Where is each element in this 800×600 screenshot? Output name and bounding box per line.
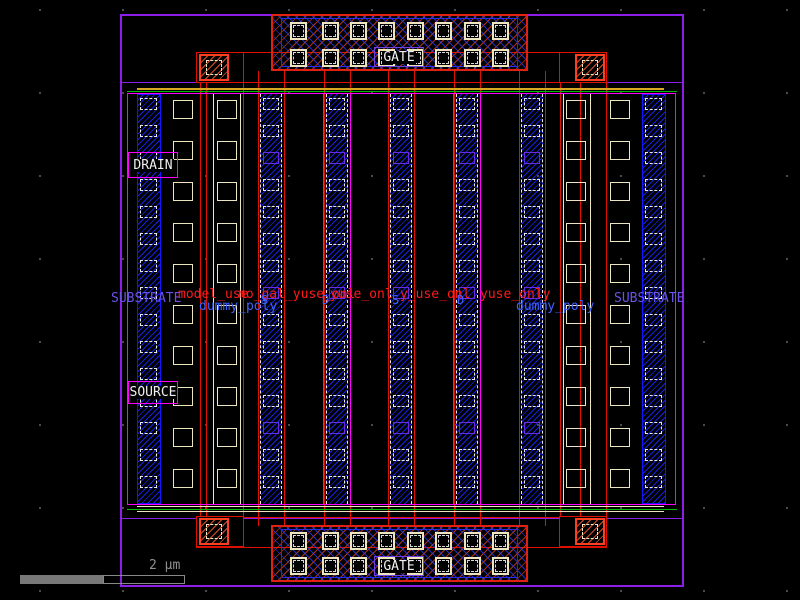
contact-square (329, 341, 345, 353)
contact-square (263, 476, 279, 488)
contact-square (645, 314, 662, 326)
contact-square (524, 476, 540, 488)
source-label-box[interactable]: SOURCE (128, 381, 178, 404)
contact-square (140, 179, 157, 191)
grid-dot (39, 590, 41, 592)
well-tap-square (610, 182, 630, 201)
contact-square (140, 125, 157, 137)
contact-line-bottom (137, 511, 664, 512)
grid-dot (371, 590, 373, 592)
gate-contact-cut (495, 52, 506, 64)
contact-square (263, 368, 279, 380)
substrate-label-left[interactable]: SUBSTRATE (111, 292, 181, 305)
contact-square (393, 341, 409, 353)
grid-dot (786, 175, 788, 177)
contact-square (263, 233, 279, 245)
gate-contact-cut (495, 535, 506, 547)
contact-square (263, 395, 279, 407)
well-tap-square (610, 346, 630, 365)
well-tap-square (610, 469, 630, 488)
well-tap-square (217, 428, 237, 447)
substrate-label-right[interactable]: SUBSTRATE (614, 292, 684, 305)
finger-letter-d1[interactable]: D (322, 294, 329, 306)
grid-dot (288, 9, 290, 11)
via-cut (206, 60, 222, 75)
contact-square (393, 476, 409, 488)
contact-square (459, 206, 475, 218)
well-tap-square (566, 182, 586, 201)
contact-square (459, 395, 475, 407)
contact-square (329, 368, 345, 380)
well-tap-square (566, 469, 586, 488)
well-tap-square (217, 182, 237, 201)
well-tap-square (610, 387, 630, 406)
grid-dot (39, 341, 41, 343)
drain-label: DRAIN (132, 159, 173, 172)
well-tap-square (173, 223, 193, 242)
well-tap-square (610, 428, 630, 447)
gate-contact-cut (438, 52, 449, 64)
contact-square (645, 395, 662, 407)
well-tap-square (217, 100, 237, 119)
well-tap-square (173, 346, 193, 365)
gate-contact-cut (438, 25, 449, 37)
grid-dot (537, 590, 539, 592)
contact-square (459, 179, 475, 191)
gate-contact-cut (353, 535, 364, 547)
gate-contact-cut (325, 560, 336, 572)
diffusion-line-bottom (127, 509, 677, 510)
grid-dot (786, 258, 788, 260)
gate-contact-cut (438, 560, 449, 572)
contact-square (459, 152, 475, 164)
well-tap-square (173, 428, 193, 447)
grid-dot (703, 92, 705, 94)
contact-square (459, 476, 475, 488)
contact-square (645, 449, 662, 461)
scale-bar-label: 2 µm (149, 559, 180, 572)
grid-dot (786, 590, 788, 592)
grid-dot (703, 9, 705, 11)
contact-square (140, 260, 157, 272)
diffusion-line-top (127, 91, 677, 92)
contact-square (329, 395, 345, 407)
grid-dot (786, 9, 788, 11)
contact-square (393, 314, 409, 326)
gate-label-box-top[interactable]: GATE (374, 47, 424, 67)
grid-dot (703, 258, 705, 260)
contact-square (645, 179, 662, 191)
contact-square (263, 422, 279, 434)
contact-square (263, 449, 279, 461)
gate-label-box-bottom[interactable]: GATE (374, 556, 424, 576)
well-tap-square (173, 182, 193, 201)
gate-contact-cut (467, 560, 478, 572)
contact-square (524, 314, 540, 326)
contact-square (393, 422, 409, 434)
contact-square (393, 152, 409, 164)
contact-square (524, 125, 540, 137)
gate-label-top: GATE (382, 51, 415, 64)
grid-dot (288, 590, 290, 592)
contact-square (329, 98, 345, 110)
contact-square (393, 260, 409, 272)
via-cut (582, 524, 598, 539)
grid-dot (786, 507, 788, 509)
gate-contact-cut (410, 25, 421, 37)
gate-contact-cut (381, 535, 392, 547)
well-tap-square (173, 305, 193, 324)
well-tap-square (566, 141, 586, 160)
contact-square (524, 98, 540, 110)
contact-square (645, 206, 662, 218)
grid-dot (371, 9, 373, 11)
contact-square (524, 422, 540, 434)
grid-dot (703, 590, 705, 592)
gate-contact-cut (293, 560, 304, 572)
well-tap-square (566, 100, 586, 119)
grid-dot (620, 9, 622, 11)
grid-dot (703, 341, 705, 343)
contact-square (329, 233, 345, 245)
contact-square (524, 341, 540, 353)
grid-dot (122, 590, 124, 592)
grid-dot (537, 9, 539, 11)
contact-square (140, 449, 157, 461)
grid-dot (39, 9, 41, 11)
contact-square (263, 98, 279, 110)
contact-square (329, 179, 345, 191)
contact-square (329, 206, 345, 218)
well-tap-square (217, 387, 237, 406)
contact-square (524, 260, 540, 272)
layout-canvas[interactable]: GATE GATE DRAIN SOURCE SUBSTRATE SUBSTRA… (0, 0, 800, 600)
contact-square (393, 233, 409, 245)
contact-square (140, 476, 157, 488)
via-cut (206, 524, 222, 539)
gate-contact-cut (353, 25, 364, 37)
contact-square (393, 179, 409, 191)
grid-dot (39, 424, 41, 426)
gate-contact-cut (438, 535, 449, 547)
finger-letter-s2[interactable]: S (392, 294, 399, 306)
grid-dot (703, 507, 705, 509)
contact-square (140, 206, 157, 218)
gate-contact-cut (353, 52, 364, 64)
scale-bar-hollow-segment (103, 575, 185, 584)
gate-contact-cut (293, 52, 304, 64)
well-tap-square (217, 264, 237, 283)
finger-letter-d2[interactable]: D (457, 294, 464, 306)
contact-square (329, 260, 345, 272)
contact-square (459, 341, 475, 353)
contact-square (524, 179, 540, 191)
contact-square (263, 260, 279, 272)
contact-square (263, 179, 279, 191)
contact-square (524, 206, 540, 218)
grid-dot (703, 424, 705, 426)
contact-square (459, 233, 475, 245)
contact-square (140, 233, 157, 245)
contact-square (393, 98, 409, 110)
grid-dot (205, 590, 207, 592)
contact-square (329, 152, 345, 164)
well-tap-square (173, 469, 193, 488)
gate-contact-cut (410, 535, 421, 547)
well-tap-square (566, 346, 586, 365)
well-tap-square (610, 100, 630, 119)
grid-dot (39, 258, 41, 260)
contact-square (329, 449, 345, 461)
gate-contact-cut (293, 535, 304, 547)
gate-contact-cut (293, 25, 304, 37)
drain-label-box[interactable]: DRAIN (128, 152, 178, 178)
contact-square (393, 368, 409, 380)
grid-dot (39, 507, 41, 509)
implant-line-top (137, 88, 664, 90)
well-tap-square (173, 100, 193, 119)
grid-dot (786, 341, 788, 343)
contact-square (524, 233, 540, 245)
contact-square (329, 125, 345, 137)
contact-square (459, 314, 475, 326)
well-tap-square (217, 223, 237, 242)
grid-dot (620, 590, 622, 592)
contact-square (329, 422, 345, 434)
contact-square (140, 422, 157, 434)
dummy-poly-label-right[interactable]: dummy_poly (516, 300, 594, 313)
gate-contact-cut (467, 52, 478, 64)
well-tap-square (566, 428, 586, 447)
contact-square (524, 395, 540, 407)
well-tap-square (217, 346, 237, 365)
annotation-text[interactable]: yuse_onl (330, 288, 393, 301)
contact-square (645, 152, 662, 164)
contact-square (329, 476, 345, 488)
via-cut (582, 60, 598, 75)
contact-square (459, 422, 475, 434)
contact-square (459, 368, 475, 380)
gate-contact-cut (381, 25, 392, 37)
gate-contact-cut (325, 535, 336, 547)
contact-square (263, 206, 279, 218)
grid-dot (39, 175, 41, 177)
contact-square (524, 368, 540, 380)
contact-square (140, 98, 157, 110)
contact-square (263, 314, 279, 326)
gate-label-bottom: GATE (382, 560, 415, 573)
grid-dot (703, 175, 705, 177)
contact-square (524, 152, 540, 164)
finger-letter-s1[interactable]: S (261, 294, 268, 306)
well-tap-square (173, 264, 193, 283)
grid-dot (39, 92, 41, 94)
contact-square (393, 125, 409, 137)
well-tap-square (610, 264, 630, 283)
contact-square (645, 368, 662, 380)
contact-square (645, 98, 662, 110)
contact-square (140, 368, 157, 380)
gate-contact-cut (325, 25, 336, 37)
contact-square (140, 341, 157, 353)
well-tap-square (566, 264, 586, 283)
grid-dot (786, 92, 788, 94)
well-tap-square (217, 141, 237, 160)
contact-line-bottom (137, 506, 664, 507)
contact-square (459, 449, 475, 461)
well-tap-square (566, 387, 586, 406)
well-tap-square (566, 223, 586, 242)
gate-contact-cut (495, 25, 506, 37)
contact-square (263, 152, 279, 164)
contact-square (459, 125, 475, 137)
contact-square (459, 98, 475, 110)
contact-square (393, 395, 409, 407)
contact-square (524, 449, 540, 461)
contact-square (263, 341, 279, 353)
scale-bar-solid-segment (20, 575, 103, 584)
well-tap-square (610, 141, 630, 160)
contact-square (645, 260, 662, 272)
gate-contact-cut (353, 560, 364, 572)
well-tap-square (610, 223, 630, 242)
grid-dot (454, 590, 456, 592)
grid-dot (454, 9, 456, 11)
well-tap-square (610, 305, 630, 324)
contact-square (645, 422, 662, 434)
contact-square (140, 314, 157, 326)
contact-square (393, 206, 409, 218)
contact-square (329, 314, 345, 326)
contact-square (459, 260, 475, 272)
gate-contact-cut (325, 52, 336, 64)
grid-dot (205, 9, 207, 11)
contact-square (393, 449, 409, 461)
contact-square (263, 125, 279, 137)
contact-square (645, 476, 662, 488)
grid-dot (122, 9, 124, 11)
source-label: SOURCE (129, 386, 178, 399)
gate-contact-cut (495, 560, 506, 572)
gate-contact-cut (467, 25, 478, 37)
grid-dot (786, 424, 788, 426)
contact-square (645, 233, 662, 245)
well-tap-square (217, 469, 237, 488)
contact-square (645, 125, 662, 137)
contact-square (645, 341, 662, 353)
gate-contact-cut (467, 535, 478, 547)
